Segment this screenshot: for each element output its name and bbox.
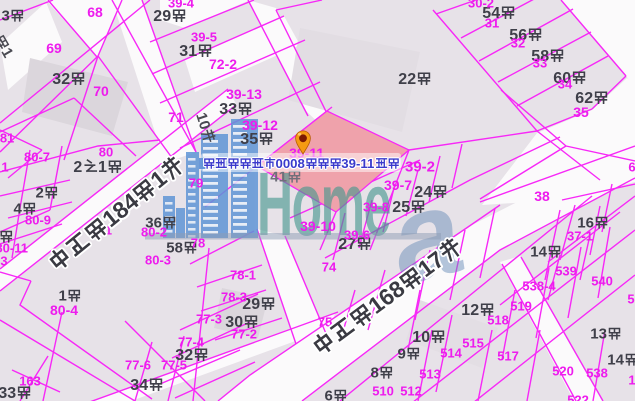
svg-text:512: 512: [400, 384, 422, 399]
svg-text:6: 6: [628, 160, 635, 175]
svg-text:6: 6: [325, 387, 333, 401]
svg-text:538: 538: [586, 366, 608, 381]
svg-text:77-6: 77-6: [125, 358, 151, 373]
svg-text:39-5: 39-5: [191, 30, 217, 45]
svg-text:78: 78: [191, 236, 205, 251]
svg-text:13: 13: [590, 325, 607, 342]
svg-text:31: 31: [179, 43, 197, 60]
svg-text:32: 32: [52, 71, 70, 88]
svg-text:39-2: 39-2: [405, 158, 435, 175]
svg-text:35: 35: [573, 104, 589, 120]
svg-text:8: 8: [371, 364, 379, 381]
svg-text:538-4: 538-4: [522, 279, 556, 294]
svg-text:39-7: 39-7: [384, 177, 412, 193]
svg-text:39-11: 39-11: [341, 156, 374, 171]
svg-text:5: 5: [627, 292, 634, 307]
svg-text:39-8: 39-8: [363, 200, 389, 215]
svg-text:513: 513: [419, 367, 441, 382]
svg-text:3: 3: [0, 254, 7, 269]
svg-text:34: 34: [558, 77, 573, 92]
svg-text:68: 68: [87, 4, 103, 20]
svg-text:80: 80: [99, 145, 113, 160]
svg-text:0008: 0008: [276, 156, 305, 171]
svg-text:9: 9: [398, 345, 406, 362]
svg-text:39-4: 39-4: [168, 0, 195, 11]
svg-text:514: 514: [440, 346, 462, 361]
svg-text:69: 69: [46, 40, 62, 56]
svg-text:31: 31: [485, 16, 499, 31]
svg-text:10: 10: [412, 329, 430, 346]
svg-text:522: 522: [567, 393, 589, 401]
svg-text:39-13: 39-13: [226, 86, 262, 102]
svg-text:34: 34: [130, 377, 148, 394]
svg-text:33: 33: [0, 385, 16, 401]
svg-text:80-7: 80-7: [24, 150, 50, 165]
svg-text:78-1: 78-1: [230, 268, 256, 283]
svg-text:12: 12: [461, 302, 479, 319]
svg-text:37-1: 37-1: [567, 229, 593, 244]
svg-text:39-6: 39-6: [344, 228, 370, 243]
svg-text:38: 38: [534, 188, 550, 204]
svg-text:33: 33: [533, 56, 547, 71]
svg-text:80-9: 80-9: [25, 213, 51, 228]
svg-text:520: 520: [552, 364, 574, 379]
svg-text:518: 518: [487, 313, 509, 328]
svg-text:539: 539: [555, 264, 577, 279]
svg-text:24: 24: [414, 184, 432, 201]
svg-text:1: 1: [628, 373, 635, 388]
svg-text:2: 2: [36, 184, 44, 201]
svg-text:81: 81: [0, 131, 14, 146]
svg-text:39-12: 39-12: [242, 117, 278, 133]
svg-text:519: 519: [510, 299, 532, 314]
svg-text:510: 510: [372, 384, 394, 399]
svg-text:77-5: 77-5: [161, 358, 187, 373]
svg-text:77-2: 77-2: [231, 327, 257, 342]
svg-text:74: 74: [322, 260, 337, 275]
svg-text:30-2: 30-2: [468, 0, 494, 11]
svg-text:14: 14: [607, 351, 624, 368]
svg-text:4: 4: [14, 200, 23, 217]
svg-text:3: 3: [2, 7, 10, 24]
svg-text:79: 79: [189, 176, 203, 191]
svg-text:71: 71: [168, 109, 184, 125]
svg-text:515: 515: [462, 336, 484, 351]
svg-text:2: 2: [73, 159, 82, 176]
svg-text:80-4: 80-4: [50, 302, 78, 318]
svg-text:32: 32: [511, 36, 525, 51]
svg-text:35: 35: [240, 131, 258, 148]
svg-text:80-3: 80-3: [145, 253, 171, 268]
svg-text:14: 14: [530, 243, 547, 260]
svg-text:77-4: 77-4: [178, 335, 205, 350]
svg-text:78-3: 78-3: [221, 290, 247, 305]
svg-text:22: 22: [398, 71, 416, 88]
svg-text:72-2: 72-2: [209, 56, 237, 72]
svg-text:163: 163: [19, 374, 41, 389]
svg-text:1: 1: [98, 159, 107, 176]
svg-text:33: 33: [219, 101, 237, 118]
svg-text:39-10: 39-10: [300, 218, 336, 234]
svg-text:25: 25: [392, 199, 410, 216]
svg-text:540: 540: [591, 274, 613, 289]
svg-text:80-2: 80-2: [141, 225, 167, 240]
svg-text:77-3: 77-3: [196, 312, 222, 327]
svg-text:70: 70: [93, 83, 109, 99]
svg-text:1: 1: [1, 160, 8, 175]
svg-text:517: 517: [497, 349, 519, 364]
